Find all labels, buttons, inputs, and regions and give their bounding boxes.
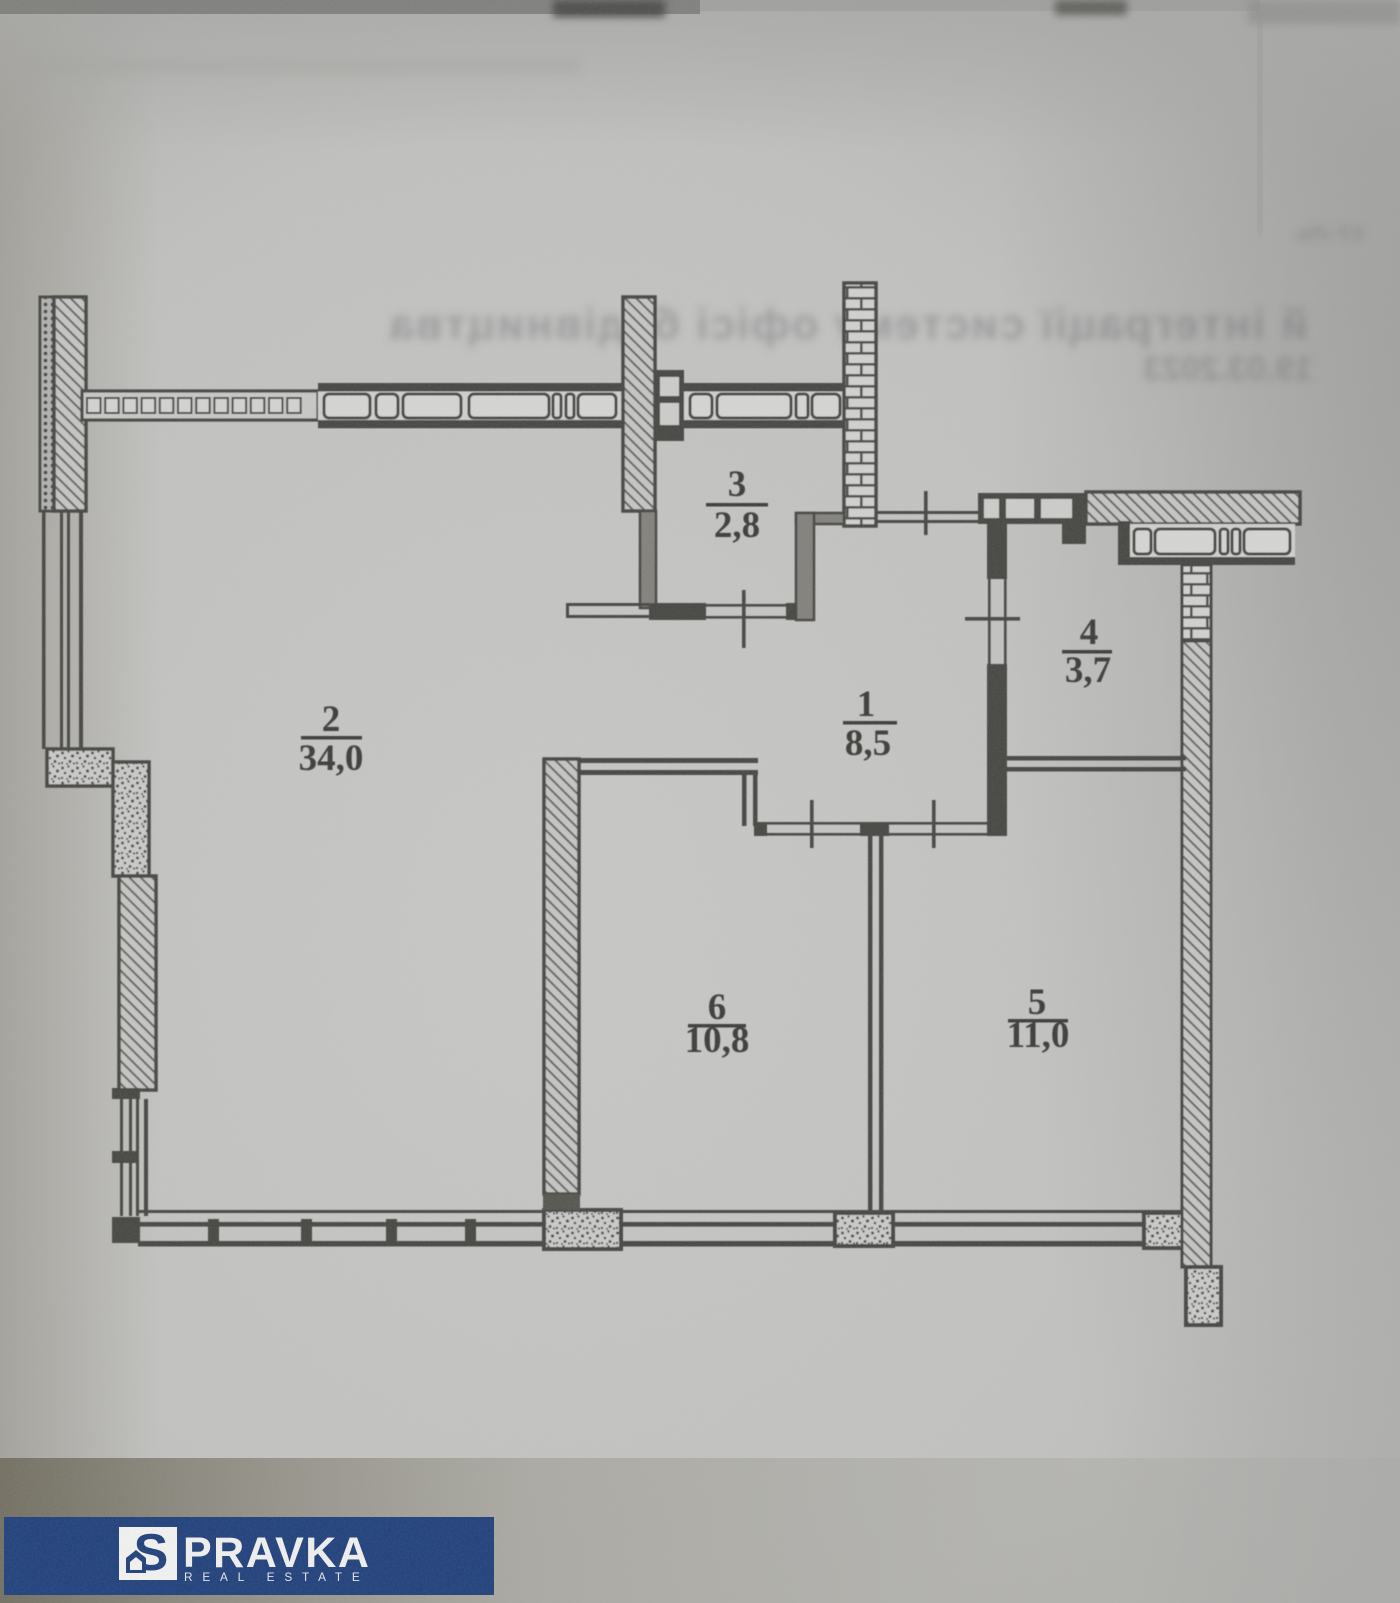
svg-text:REAL ESTATE: REAL ESTATE — [184, 1570, 370, 1584]
svg-text:1: 1 — [857, 684, 876, 725]
svg-text:8,5: 8,5 — [845, 723, 891, 764]
svg-text:34,0: 34,0 — [299, 738, 364, 779]
svg-text:19.03.2023: 19.03.2023 — [1143, 350, 1313, 388]
svg-text:ст-ль: ст-ль — [1296, 216, 1364, 246]
svg-text:2: 2 — [322, 699, 341, 740]
svg-text:3,7: 3,7 — [1065, 650, 1111, 691]
svg-text:3: 3 — [728, 464, 747, 505]
svg-text:10,8: 10,8 — [685, 1020, 750, 1061]
svg-text:4: 4 — [1080, 612, 1099, 653]
svg-text:2,8: 2,8 — [714, 505, 760, 546]
svg-text:11,0: 11,0 — [1007, 1015, 1070, 1056]
